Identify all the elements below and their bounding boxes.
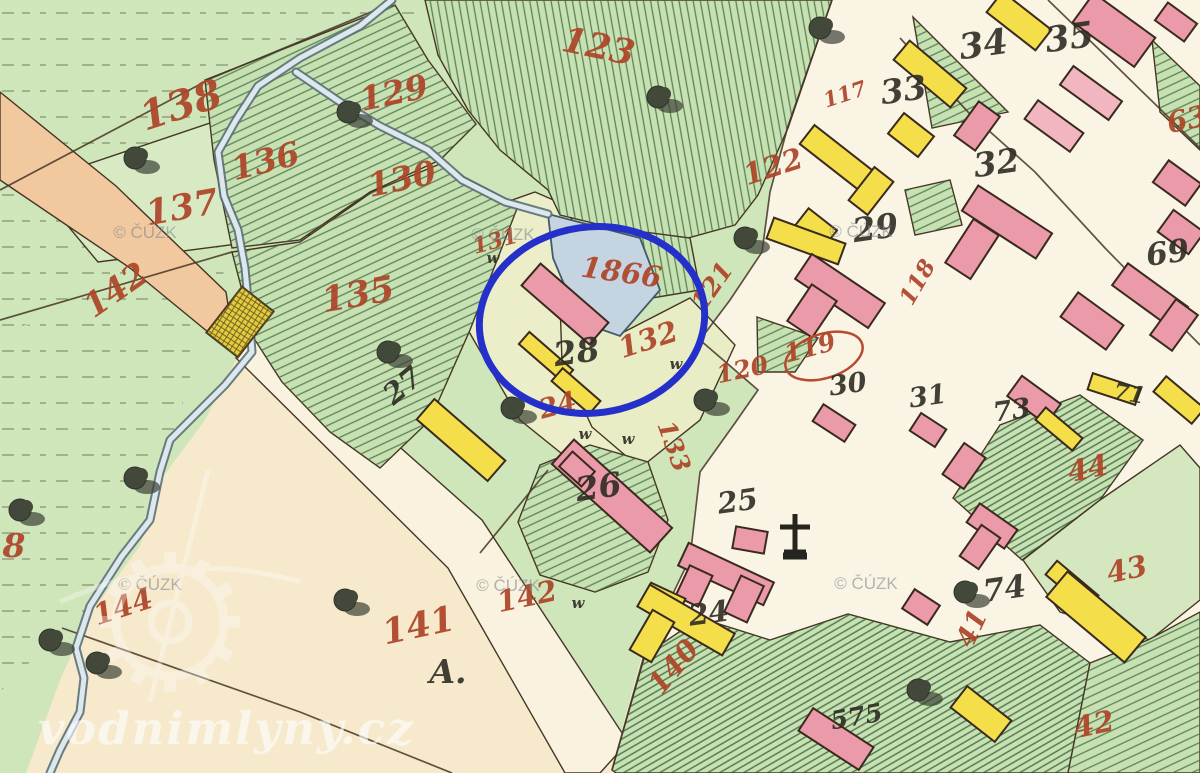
tree-icon [744, 228, 758, 242]
map-viewport[interactable]: 1381361371421291301231351221171311866132… [0, 0, 1200, 773]
tree-icon [49, 630, 63, 644]
house-number-black: 32 [971, 140, 1022, 185]
cuzk-watermark: © ČÚZK [829, 222, 893, 241]
tree-icon [819, 18, 833, 32]
house-number-black: A. [426, 652, 466, 691]
logo-tooth [227, 616, 240, 628]
tree-icon [387, 342, 401, 356]
house-number-black: 24 [685, 593, 731, 632]
tree-icon [134, 148, 148, 162]
tree-icon [134, 468, 148, 482]
house-number-black: 74 [981, 568, 1029, 610]
tree-icon [657, 87, 671, 101]
tree-icon [96, 653, 110, 667]
house-number-black: 35 [1042, 14, 1096, 61]
cuzk-watermark: © ČÚZK [476, 576, 540, 595]
house-number-black: w [487, 249, 501, 267]
house-number-black: 25 [714, 481, 760, 520]
house-number-black: 71 [1111, 378, 1147, 410]
cuzk-watermark: © ČÚZK [471, 225, 535, 244]
tree-icon [19, 500, 33, 514]
parcel-number-red: 63 [1164, 98, 1200, 140]
house-number-black: 73 [991, 393, 1033, 429]
house-number-black: w [622, 430, 636, 448]
masonry-building [732, 526, 767, 553]
house-number-black: 69 [1144, 232, 1192, 274]
site-watermark: vodnimlyny.cz [38, 702, 415, 755]
house-number-black: w [579, 425, 593, 443]
logo-tooth [100, 616, 113, 628]
tree-icon [917, 680, 931, 694]
house-number-black: 28 [550, 329, 602, 374]
house-number-black: 30 [827, 367, 869, 403]
tree-icon [344, 590, 358, 604]
cuzk-watermark: © ČÚZK [834, 574, 898, 593]
house-number-black: 31 [907, 379, 949, 415]
logo-tooth [164, 552, 176, 565]
cuzk-watermark: © ČÚZK [113, 223, 177, 242]
house-number-black: 26 [572, 464, 624, 509]
tree-icon [704, 390, 718, 404]
parcel-number-red: 8 [2, 526, 26, 565]
house-number-black: 33 [878, 67, 929, 112]
house-number-black: 34 [956, 21, 1010, 68]
cadastral-map: 1381361371421291301231351221171311866132… [0, 0, 1200, 773]
house-number-black: w [572, 594, 586, 612]
tree-icon [347, 102, 361, 116]
logo-tooth [164, 679, 176, 692]
tree-icon [964, 582, 978, 596]
